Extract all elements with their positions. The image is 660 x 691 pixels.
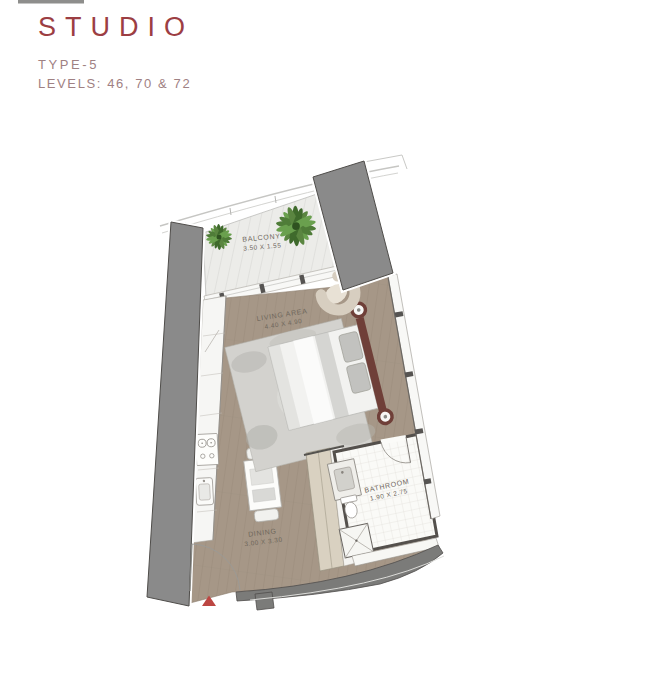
cooktop: [195, 433, 219, 465]
top-edge-artifact: [18, 0, 84, 4]
kitchen-sink: [195, 478, 213, 506]
type-label: TYPE-5: [38, 57, 194, 72]
page-title: STUDIO: [38, 12, 194, 43]
plan-header: STUDIO TYPE-5 LEVELS: 46, 70 & 72: [38, 12, 194, 91]
floor-plan-svg: BALCONY 3.50 X 1.55 LIVING AREA 4.40 X 4…: [0, 0, 660, 691]
levels-label: LEVELS: 46, 70 & 72: [38, 76, 194, 91]
